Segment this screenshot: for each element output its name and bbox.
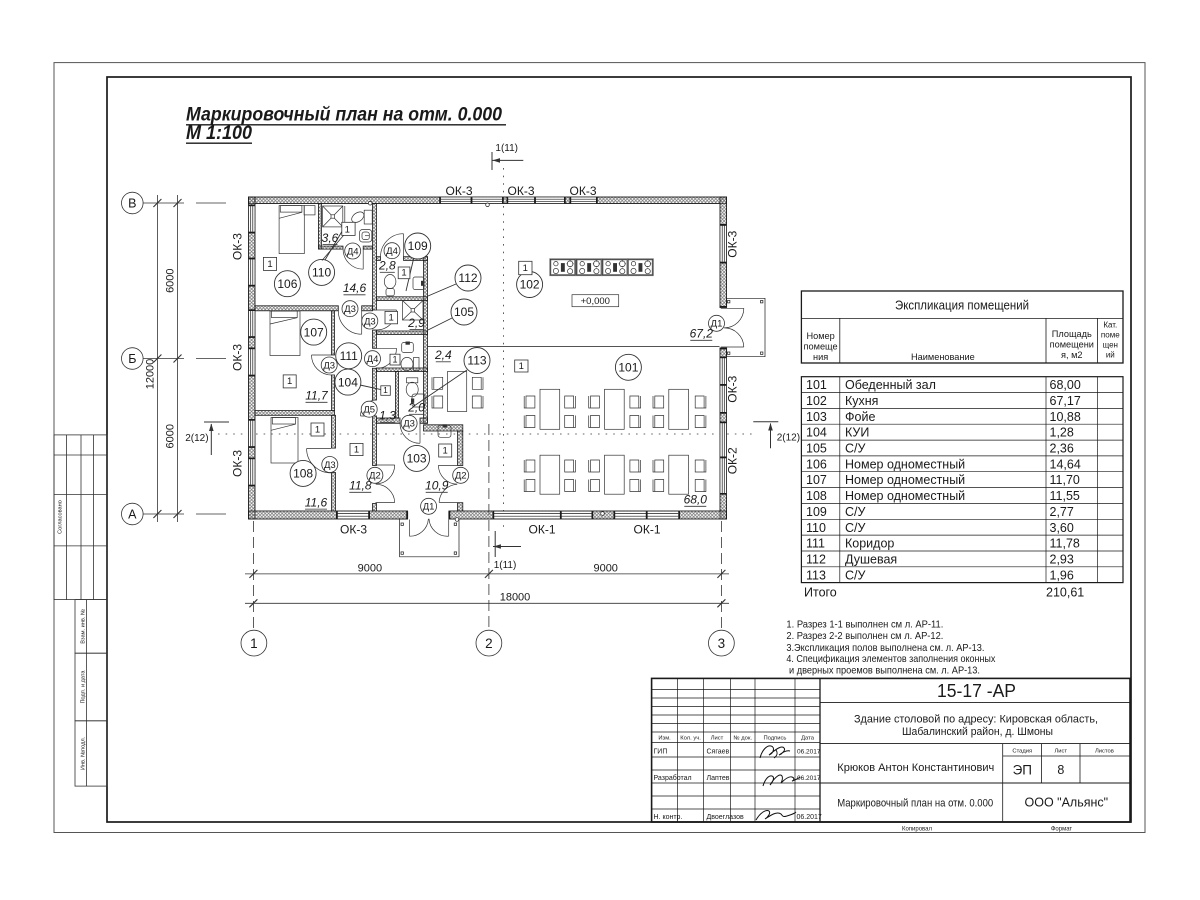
- svg-text:2. Разрез 2-2 выполнен см л. А: 2. Разрез 2-2 выполнен см л. АР-12.: [786, 631, 943, 642]
- svg-text:3,60: 3,60: [1050, 521, 1074, 535]
- svg-text:9000: 9000: [593, 562, 617, 574]
- svg-text:Д4: Д4: [386, 246, 398, 257]
- svg-text:Фойе: Фойе: [845, 410, 875, 424]
- svg-text:Маркировочный план на отм. 0.: Маркировочный план на отм. 0.000: [837, 798, 993, 810]
- svg-text:Б: Б: [128, 352, 136, 366]
- svg-text:112: 112: [806, 553, 826, 567]
- svg-text:2,77: 2,77: [1050, 505, 1074, 519]
- svg-text:111: 111: [340, 349, 359, 363]
- svg-text:Двоеглазов: Двоеглазов: [707, 814, 744, 821]
- svg-text:ОК-3: ОК-3: [231, 450, 245, 477]
- svg-text:6000: 6000: [165, 424, 177, 448]
- svg-text:Крюков Антон Константинович: Крюков Антон Константинович: [837, 762, 994, 774]
- svg-text:4. Спецификация элементов запо: 4. Спецификация элементов заполнения око…: [786, 653, 995, 665]
- svg-text:106: 106: [277, 277, 297, 291]
- svg-text:1,28: 1,28: [1050, 426, 1074, 440]
- svg-text:1: 1: [267, 259, 272, 270]
- svg-text:105: 105: [454, 305, 474, 319]
- svg-text:111: 111: [806, 537, 825, 551]
- svg-text:ОК-2: ОК-2: [726, 447, 740, 474]
- svg-text:ния: ния: [813, 352, 828, 362]
- svg-text:1: 1: [345, 225, 350, 236]
- svg-text:Номер: Номер: [806, 331, 834, 341]
- svg-text:107: 107: [806, 473, 827, 487]
- svg-text:06.2017: 06.2017: [797, 775, 821, 782]
- svg-text:Сягаев: Сягаев: [707, 749, 730, 756]
- svg-text:06.2017: 06.2017: [797, 814, 822, 821]
- svg-text:112: 112: [458, 271, 477, 285]
- svg-text:ООО "Альянс": ООО "Альянс": [1025, 796, 1109, 810]
- svg-text:Разработал: Разработал: [654, 774, 692, 782]
- svg-text:67,17: 67,17: [1050, 394, 1081, 408]
- svg-text:108: 108: [293, 467, 313, 481]
- svg-text:и дверных проемов выполнена с: и дверных проемов выполнена см. л. АР-13…: [789, 665, 980, 676]
- svg-text:1,3: 1,3: [379, 409, 396, 423]
- svg-text:помещени: помещени: [1050, 340, 1094, 350]
- svg-text:Д3: Д3: [403, 419, 415, 430]
- svg-text:Подпись: Подпись: [764, 736, 787, 742]
- svg-text:68,00: 68,00: [1050, 378, 1081, 392]
- svg-text:109: 109: [408, 239, 428, 253]
- svg-text:М 1:100: М 1:100: [186, 122, 252, 144]
- svg-text:Стадия: Стадия: [1012, 749, 1032, 755]
- svg-text:11,78: 11,78: [1050, 537, 1080, 551]
- svg-text:113: 113: [806, 568, 826, 582]
- svg-text:Д5: Д5: [363, 405, 375, 416]
- svg-text:103: 103: [806, 410, 827, 424]
- svg-text:Наименование: Наименование: [911, 352, 975, 362]
- svg-text:14,6: 14,6: [343, 281, 367, 295]
- svg-text:ОК-3: ОК-3: [340, 523, 367, 537]
- svg-text:3: 3: [718, 636, 726, 651]
- svg-text:А: А: [128, 508, 137, 522]
- svg-text:11,55: 11,55: [1050, 489, 1080, 503]
- svg-text:Шабалинский район, д. Шмоны: Шабалинский район, д. Шмоны: [902, 726, 1053, 738]
- svg-text:ОК-3: ОК-3: [231, 344, 245, 371]
- svg-text:14,64: 14,64: [1050, 457, 1081, 471]
- svg-text:Д3: Д3: [324, 460, 336, 471]
- svg-text:С/У: С/У: [845, 568, 866, 582]
- svg-text:10,88: 10,88: [1050, 410, 1081, 424]
- svg-text:10,9: 10,9: [425, 479, 449, 493]
- svg-text:9000: 9000: [358, 562, 382, 574]
- svg-text:2(12): 2(12): [777, 433, 800, 444]
- svg-text:1: 1: [443, 445, 448, 456]
- svg-text:С/У: С/У: [845, 442, 866, 456]
- svg-text:поме: поме: [1101, 331, 1120, 340]
- svg-text:ОК-3: ОК-3: [446, 184, 473, 198]
- svg-text:110: 110: [806, 521, 826, 535]
- svg-text:Лист: Лист: [1054, 749, 1067, 755]
- svg-text:Согласовано: Согласовано: [58, 500, 64, 534]
- svg-text:ОК-3: ОК-3: [508, 184, 535, 198]
- svg-text:ОК-3: ОК-3: [726, 375, 740, 402]
- svg-text:2,0: 2,0: [407, 401, 425, 415]
- svg-text:Коридор: Коридор: [845, 537, 894, 551]
- svg-text:108: 108: [806, 489, 827, 503]
- svg-text:1: 1: [392, 355, 397, 365]
- svg-text:Д1: Д1: [423, 502, 435, 513]
- svg-text:ОК-3: ОК-3: [570, 184, 597, 198]
- svg-text:2,8: 2,8: [378, 259, 396, 273]
- svg-text:3.Экспликация полов выполнена: 3.Экспликация полов выполнена см. л. АР-…: [786, 643, 984, 654]
- svg-text:Инв. №подл.: Инв. №подл.: [81, 736, 87, 770]
- svg-text:18000: 18000: [500, 592, 531, 604]
- svg-text:1: 1: [523, 263, 528, 274]
- svg-text:Н. контр.: Н. контр.: [654, 814, 683, 821]
- svg-text:1: 1: [389, 312, 394, 323]
- svg-text:Д4: Д4: [367, 354, 379, 365]
- svg-text:1,96: 1,96: [1050, 568, 1074, 582]
- svg-text:Формат: Формат: [1051, 827, 1073, 833]
- svg-text:109: 109: [806, 505, 827, 519]
- svg-text:68,0: 68,0: [684, 493, 708, 507]
- svg-text:12000: 12000: [144, 359, 156, 390]
- svg-text:Площадь: Площадь: [1052, 329, 1092, 339]
- svg-text:1. Разрез 1-1 выполнен см л. А: 1. Разрез 1-1 выполнен см л. АР-11.: [786, 620, 943, 631]
- svg-text:Кухня: Кухня: [845, 394, 878, 408]
- svg-text:3,6: 3,6: [322, 231, 339, 245]
- svg-text:06.2017: 06.2017: [797, 749, 821, 756]
- svg-text:113: 113: [467, 354, 486, 368]
- svg-text:Подп. и дата: Подп. и дата: [81, 670, 87, 704]
- svg-text:щен: щен: [1103, 341, 1118, 350]
- svg-text:1(11): 1(11): [494, 560, 517, 571]
- svg-text:11,7: 11,7: [305, 389, 329, 403]
- svg-text:КУИ: КУИ: [845, 426, 869, 440]
- svg-text:110: 110: [312, 266, 331, 280]
- svg-text:1: 1: [519, 361, 524, 372]
- svg-text:Кат.: Кат.: [1103, 321, 1117, 330]
- svg-text:104: 104: [338, 375, 358, 389]
- svg-text:102: 102: [520, 278, 540, 292]
- svg-text:1(11): 1(11): [495, 143, 518, 154]
- svg-text:С/У: С/У: [845, 505, 866, 519]
- svg-text:помеще: помеще: [804, 342, 838, 352]
- svg-text:Здание столовой по адресу: Кир: Здание столовой по адресу: Кировская обл…: [854, 714, 1098, 726]
- svg-text:2: 2: [485, 636, 493, 651]
- svg-text:2,9: 2,9: [407, 316, 425, 330]
- svg-text:11,6: 11,6: [305, 495, 328, 509]
- svg-text:15-17 -АР: 15-17 -АР: [937, 681, 1016, 701]
- svg-text:8: 8: [1057, 763, 1064, 777]
- svg-text:11,8: 11,8: [349, 479, 372, 493]
- svg-text:ОК-1: ОК-1: [634, 523, 661, 537]
- svg-text:ГИП: ГИП: [654, 749, 668, 756]
- svg-text:105: 105: [806, 442, 827, 456]
- svg-text:Номер одноместный: Номер одноместный: [845, 457, 965, 471]
- svg-text:102: 102: [806, 394, 827, 408]
- svg-text:6000: 6000: [165, 268, 177, 292]
- svg-text:67,2: 67,2: [690, 327, 714, 341]
- svg-text:Д3: Д3: [344, 304, 356, 315]
- svg-text:Дата: Дата: [801, 736, 815, 742]
- svg-text:Д3: Д3: [323, 360, 335, 371]
- svg-text:Д2: Д2: [455, 471, 467, 482]
- svg-text:2,36: 2,36: [1050, 442, 1074, 456]
- svg-text:С/У: С/У: [845, 521, 866, 535]
- svg-text:1: 1: [287, 376, 292, 387]
- svg-text:2,93: 2,93: [1050, 553, 1074, 567]
- svg-text:2(12): 2(12): [185, 433, 208, 444]
- svg-text:104: 104: [806, 426, 827, 440]
- svg-text:Номер одноместный: Номер одноместный: [845, 489, 965, 503]
- svg-text:Номер одноместный: Номер одноместный: [845, 473, 965, 487]
- svg-text:я, м2: я, м2: [1061, 350, 1083, 360]
- svg-text:№ док.: № док.: [733, 736, 752, 742]
- svg-text:Взам. инв. №: Взам. инв. №: [81, 609, 87, 644]
- svg-text:Лаптев: Лаптев: [707, 775, 730, 782]
- svg-text:107: 107: [304, 325, 324, 339]
- svg-text:Д3: Д3: [364, 316, 376, 327]
- svg-text:ОК-3: ОК-3: [231, 233, 245, 260]
- svg-text:ОК-1: ОК-1: [529, 523, 556, 537]
- svg-text:106: 106: [806, 457, 827, 471]
- svg-text:Итого: Итого: [804, 586, 837, 600]
- svg-text:101: 101: [618, 361, 638, 375]
- svg-text:Д4: Д4: [347, 246, 359, 257]
- svg-text:101: 101: [806, 378, 827, 392]
- svg-text:1: 1: [250, 636, 258, 651]
- svg-text:ЭП: ЭП: [1013, 763, 1032, 778]
- svg-text:11,70: 11,70: [1050, 473, 1080, 487]
- svg-text:103: 103: [407, 452, 427, 466]
- svg-text:Лист: Лист: [711, 736, 724, 742]
- svg-text:+0,000: +0,000: [581, 296, 610, 307]
- svg-text:Обеденный зал: Обеденный зал: [845, 378, 936, 392]
- svg-text:Экспликация помещений: Экспликация помещений: [895, 299, 1029, 313]
- svg-text:Изм.: Изм.: [658, 736, 671, 742]
- svg-text:1: 1: [354, 444, 359, 455]
- svg-text:В: В: [128, 197, 136, 211]
- svg-text:ий: ий: [1106, 351, 1115, 360]
- svg-text:Душевая: Душевая: [845, 553, 897, 567]
- svg-text:ОК-3: ОК-3: [726, 230, 740, 257]
- svg-text:Копировал: Копировал: [902, 827, 933, 833]
- svg-text:Кол. уч.: Кол. уч.: [680, 736, 701, 742]
- svg-text:1: 1: [383, 385, 388, 395]
- svg-text:210,61: 210,61: [1046, 586, 1084, 600]
- svg-text:1: 1: [401, 268, 406, 279]
- svg-text:Листов: Листов: [1095, 749, 1114, 755]
- svg-text:1: 1: [315, 424, 320, 435]
- svg-text:2,4: 2,4: [434, 348, 452, 362]
